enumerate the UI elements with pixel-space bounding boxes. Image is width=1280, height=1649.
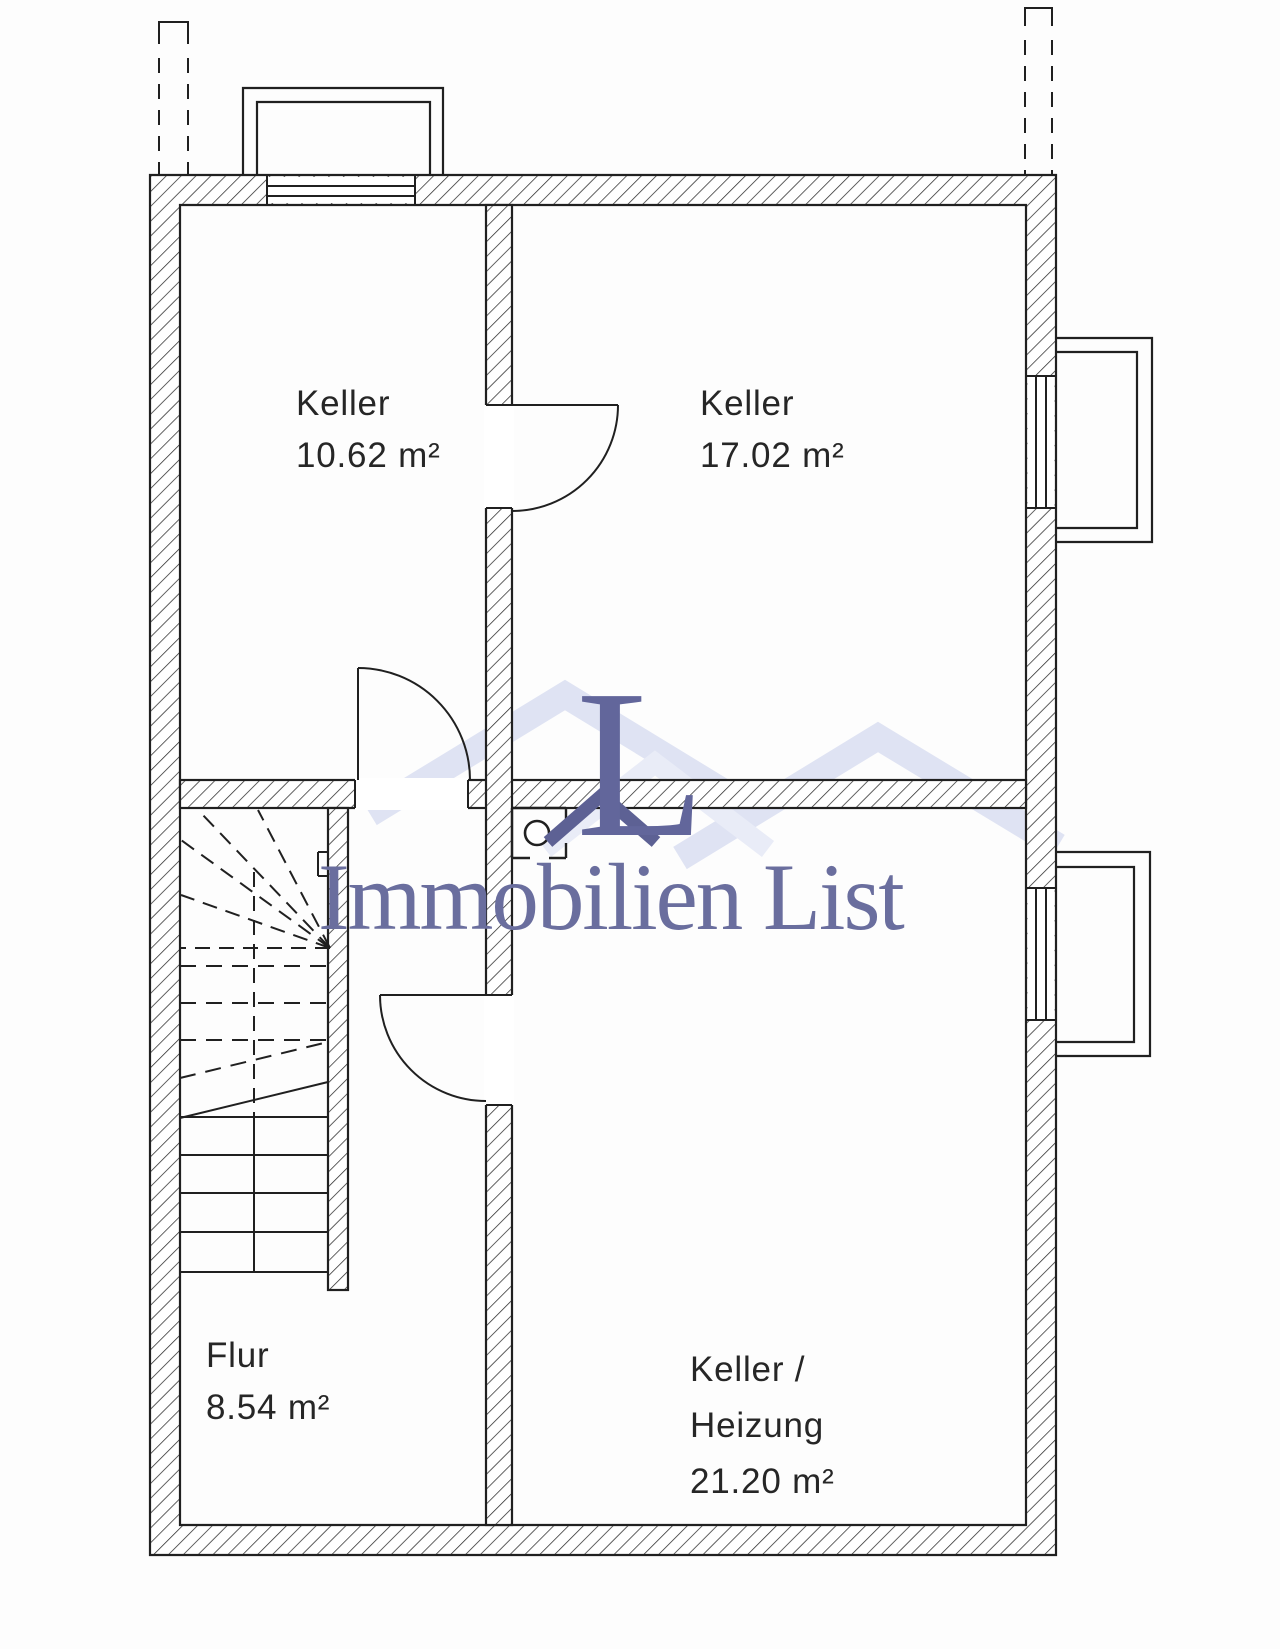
room-name: Heizung (690, 1398, 835, 1454)
room-area: 8.54 m² (206, 1382, 330, 1434)
room-label-keller-top-right: Keller 17.02 m² (700, 378, 845, 482)
wall-openings (267, 177, 1055, 1105)
flue-circle (525, 821, 549, 845)
room-label-flur: Flur 8.54 m² (206, 1330, 330, 1434)
brand-watermark-text: Immobilien List (318, 850, 903, 945)
room-name: Flur (206, 1330, 330, 1382)
room-area: 17.02 m² (700, 430, 845, 482)
light-well-right-upper (1056, 338, 1152, 542)
vent-stack-left (159, 22, 188, 175)
light-well-top (243, 88, 443, 175)
vent-stack-right (1025, 8, 1052, 175)
room-label-keller-top-left: Keller 10.62 m² (296, 378, 441, 482)
room-name: Keller (700, 378, 845, 430)
room-label-keller-heizung: Keller / Heizung 21.20 m² (690, 1342, 835, 1510)
door-swing-arc (512, 405, 618, 511)
staircase (180, 810, 330, 1272)
room-name: Keller (296, 378, 441, 430)
door-swing-arc (380, 995, 486, 1101)
floor-plan-page: Keller 10.62 m² Keller 17.02 m² Flur 8.5… (0, 0, 1280, 1649)
light-well-right-lower (1056, 852, 1150, 1056)
room-area: 21.20 m² (690, 1454, 835, 1510)
watermark-roof-icon (370, 695, 1058, 858)
room-area: 10.62 m² (296, 430, 441, 482)
room-name: Keller / (690, 1342, 835, 1398)
watermark-logo-letter: L (576, 658, 706, 870)
vent-stacks (159, 8, 1052, 175)
